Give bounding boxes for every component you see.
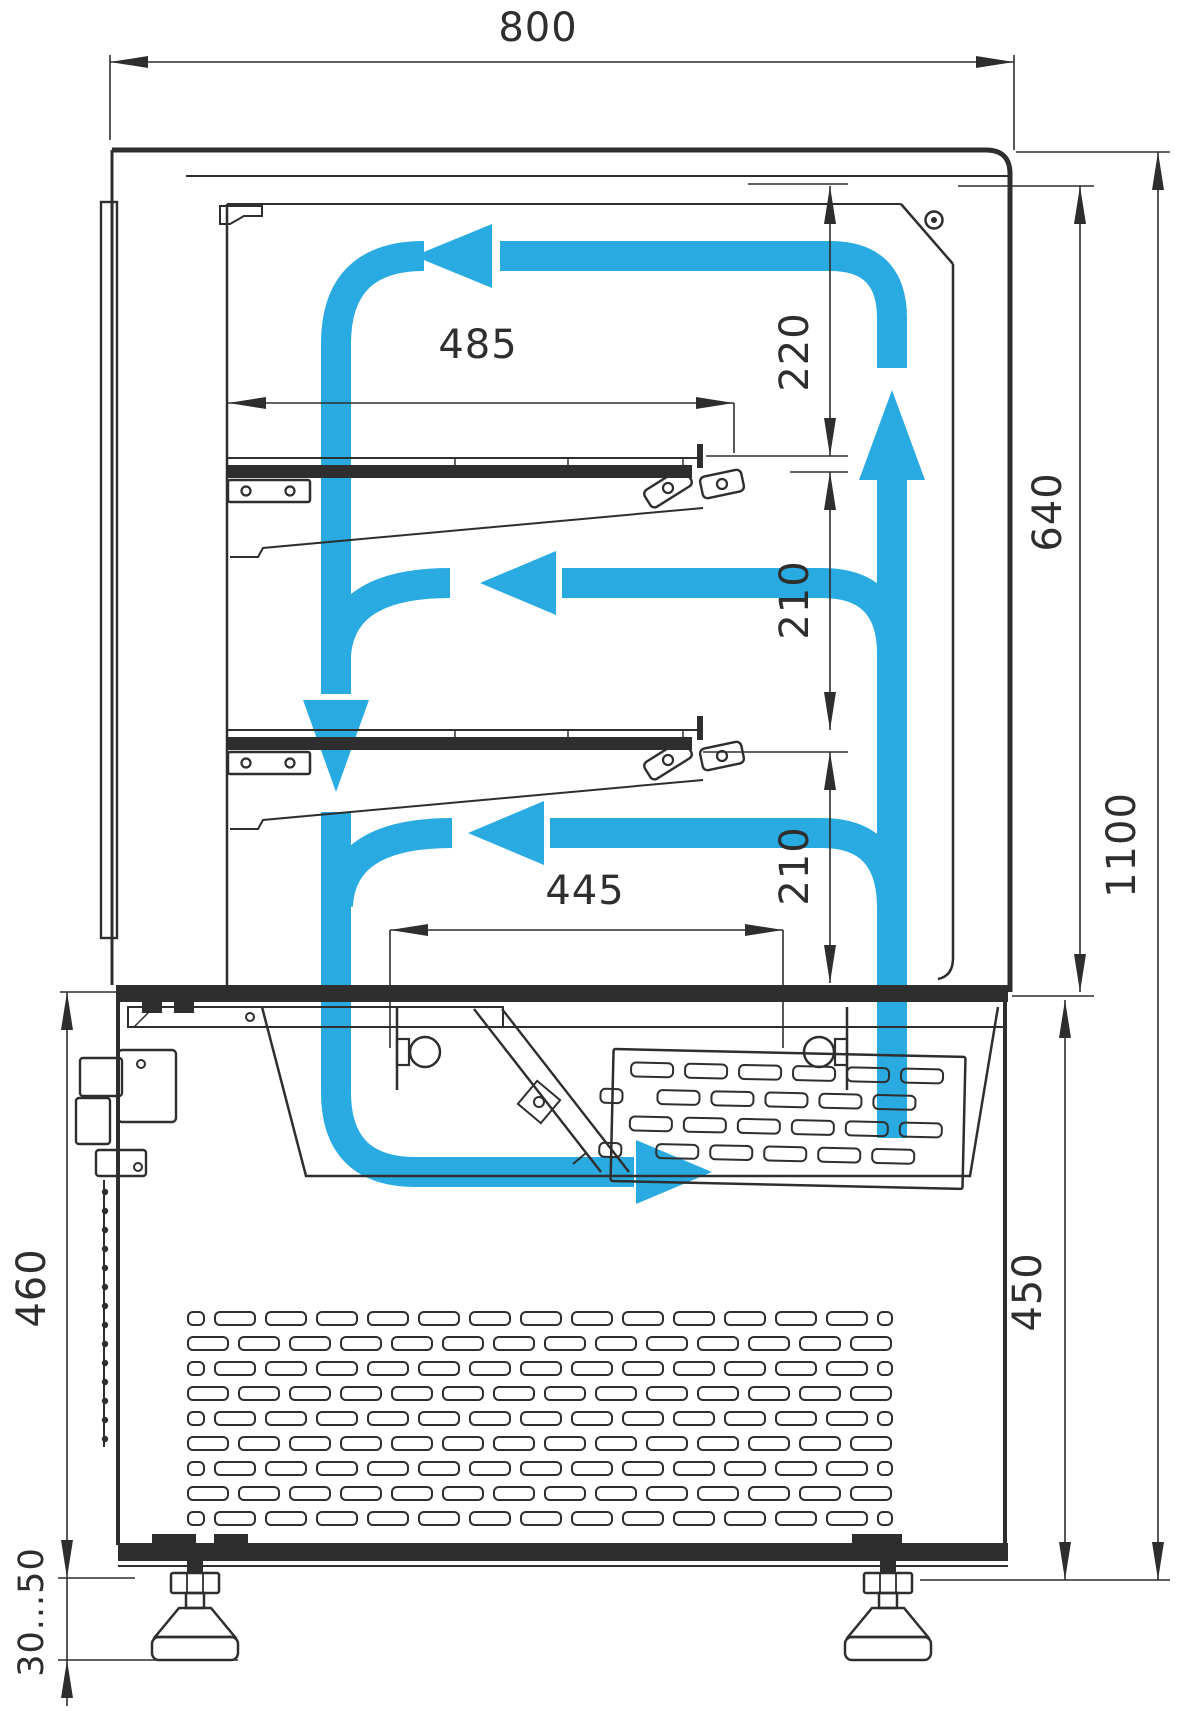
dim-base-height-lines <box>1059 1000 1071 1580</box>
rear-door-panel <box>101 202 117 938</box>
shelf-end-pin <box>697 444 703 468</box>
shelf-segment-ticks <box>455 458 683 466</box>
base-cabinet <box>76 985 1008 1566</box>
bracket-screw-icon <box>242 487 251 496</box>
clamp-screw-icon <box>663 755 673 765</box>
fan-knob-left-icon <box>410 1037 440 1067</box>
display-case-diagram <box>0 0 1177 1711</box>
counter-deck <box>118 985 1008 1002</box>
dim-label-shelf-gap-lower: 210 <box>772 826 818 905</box>
dim-label-foot-range: 30...50 <box>12 1547 52 1676</box>
compressor-body <box>118 1050 176 1122</box>
compressor-unit <box>76 1050 176 1176</box>
bracket-screw-icon <box>286 759 295 768</box>
foot-nut-facets <box>880 1573 896 1593</box>
dim-label-tray-width: 445 <box>545 868 624 914</box>
bottom-frame-band <box>118 1543 1008 1561</box>
clamp-screw-icon <box>663 483 673 493</box>
airflow-left-arrowhead-lower-icon <box>468 801 544 865</box>
foot-base <box>152 1637 238 1660</box>
tilted-glass-shelf <box>230 508 703 557</box>
dim-label-chamber-height: 640 <box>1025 472 1071 551</box>
dim-label-base-height-left: 460 <box>9 1248 55 1327</box>
shelf-clamp-plate <box>699 469 745 499</box>
dim-label-shelf-length: 485 <box>438 322 517 368</box>
airflow-lower-downturn <box>338 833 452 906</box>
foot-neck <box>186 1593 204 1608</box>
bracket-screw-icon <box>242 759 251 768</box>
airflow-left-arrowhead-top-icon <box>414 224 492 288</box>
fan-stem-left <box>397 1039 409 1065</box>
foot-cone <box>155 1608 235 1637</box>
corner-screw-center <box>931 217 937 223</box>
dim-foot-range-lines <box>58 1578 238 1706</box>
diagonal-divider <box>474 1009 629 1172</box>
dim-label-shelf-gap-upper: 210 <box>772 560 818 639</box>
shelf-end-pin <box>697 716 703 740</box>
dim-shelf-length-lines <box>228 397 734 453</box>
dim-overall-width-lines <box>110 55 1014 150</box>
bracket-screw-icon <box>286 487 295 496</box>
foot-stem <box>187 1561 203 1573</box>
foot-plate <box>152 1534 196 1545</box>
dim-label-overall-width: 800 <box>498 5 577 51</box>
shelf-wall-bracket <box>228 480 310 502</box>
foot-plate <box>852 1534 902 1545</box>
compressor-block <box>80 1058 122 1096</box>
foot-nut-facets <box>187 1573 203 1593</box>
divider-bracket <box>518 1081 560 1123</box>
shelf-lower <box>227 716 745 829</box>
dim-base-height-left-lines <box>58 992 135 1578</box>
shelf-segment-ticks <box>455 730 683 738</box>
dim-chamber-height-lines <box>958 186 1094 996</box>
chamber-corner-chamfer <box>901 204 953 264</box>
foot-nut <box>171 1573 219 1593</box>
airflow-right-arrowhead-icon <box>636 1140 712 1204</box>
adjustable-foot-right <box>845 1561 931 1660</box>
plate-screw-icon <box>246 1013 254 1021</box>
airflow-middle-outlet <box>562 583 892 654</box>
clamp-screw-icon <box>717 479 727 489</box>
chamber-right-wall <box>938 264 953 979</box>
foot-stem <box>880 1561 896 1573</box>
shelf-upper <box>227 444 745 557</box>
dim-label-base-height: 450 <box>1005 1252 1051 1331</box>
adjustable-foot-left <box>152 1561 238 1660</box>
shelf-wall-bracket <box>228 752 310 774</box>
airflow-left-arrowhead-middle-icon <box>480 551 556 615</box>
compressor-screw-icon <box>134 1163 142 1171</box>
divider-screw-icon <box>534 1097 544 1107</box>
airflow-ceiling-duct <box>500 256 892 368</box>
fan-stem-right <box>835 1039 847 1065</box>
foot-cone <box>848 1608 928 1637</box>
foot-nut <box>864 1573 912 1593</box>
compressor-valve <box>76 1098 110 1144</box>
technical-drawing-canvas: 800 485 445 220 210 210 640 1100 450 460… <box>0 0 1177 1711</box>
shelf-rail-bar <box>227 737 692 750</box>
foot-neck <box>879 1593 897 1608</box>
dim-label-overall-height: 1100 <box>1099 792 1145 898</box>
shelf-clamp-plate <box>699 741 745 771</box>
foot-base <box>845 1637 931 1660</box>
airflow-up-arrowhead-icon <box>859 390 925 480</box>
foot-plate <box>214 1534 248 1545</box>
ventilation-grille <box>188 1312 892 1525</box>
dim-label-top-clearance: 220 <box>772 312 818 391</box>
fan-knob-right-icon <box>804 1037 834 1067</box>
shelf-rail-bar <box>227 465 692 478</box>
airflow-middle-downturn <box>336 583 450 655</box>
compressor-screw-icon <box>137 1060 145 1068</box>
